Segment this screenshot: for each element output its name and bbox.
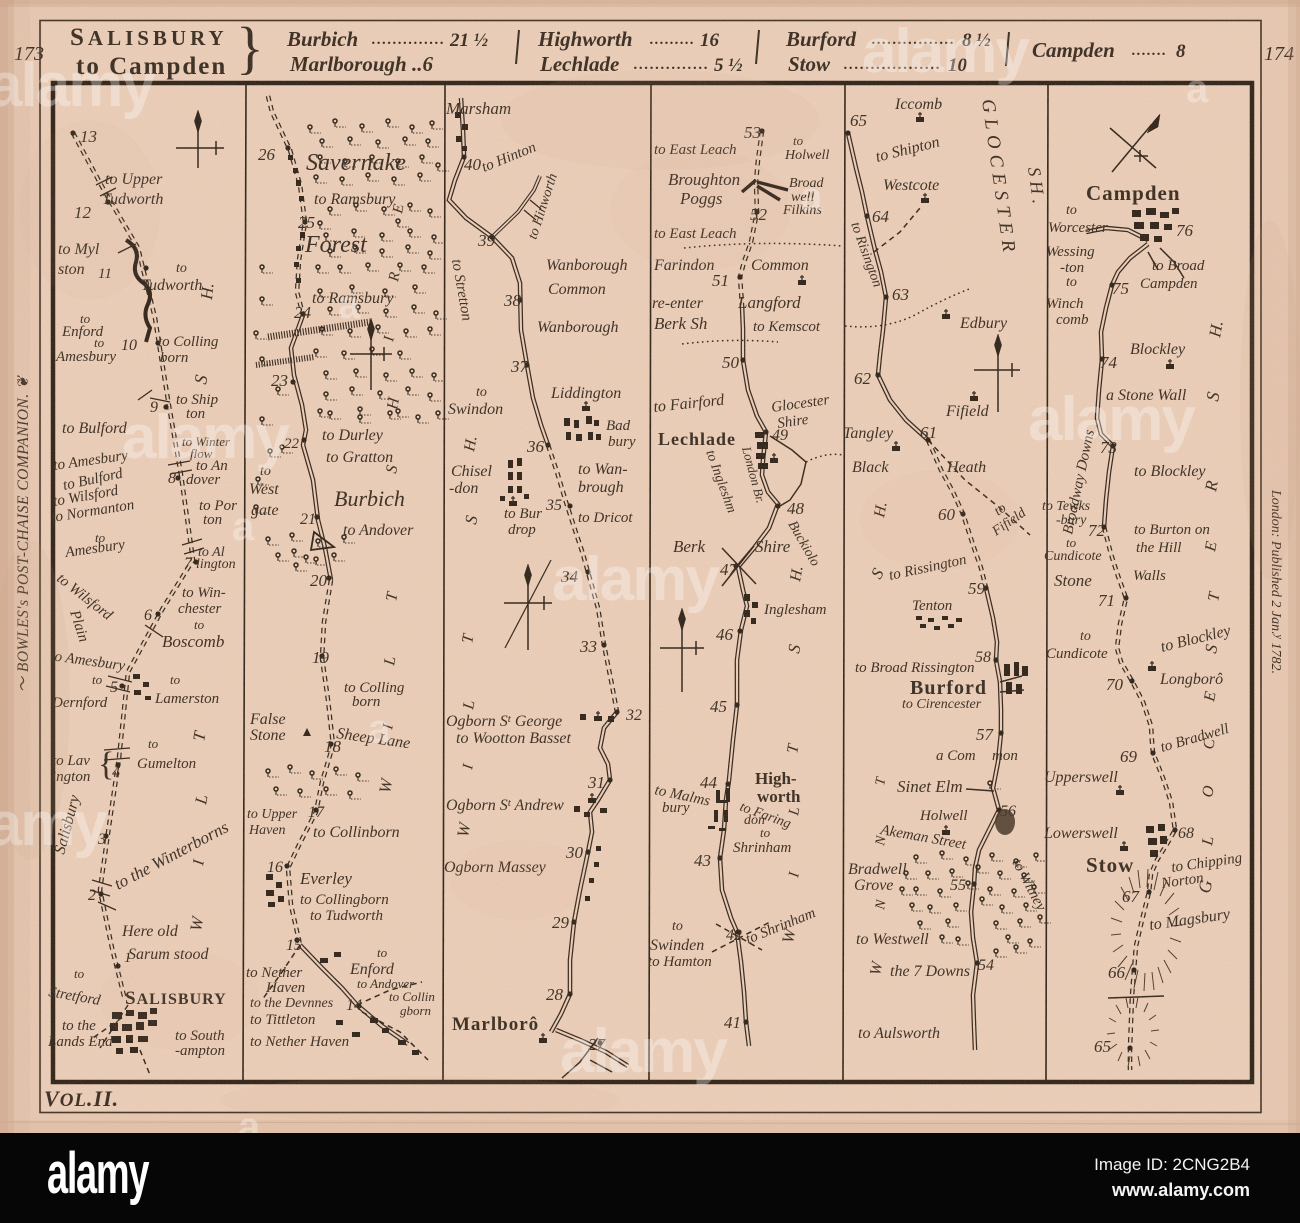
svg-text:Lamerston: Lamerston <box>154 691 219 707</box>
svg-text:comb: comb <box>1056 312 1089 328</box>
svg-text:Liddington: Liddington <box>550 385 621 402</box>
svg-text:to Collin: to Collin <box>389 989 435 1004</box>
svg-text:to: to <box>1066 275 1077 290</box>
svg-text:Dernford: Dernford <box>51 695 108 711</box>
svg-text:Burbich: Burbich <box>286 27 358 51</box>
svg-text:..............: .............. <box>372 32 444 48</box>
svg-text:12: 12 <box>74 203 92 222</box>
svg-text:to Nether: to Nether <box>246 965 302 981</box>
svg-text:Sarum stood: Sarum stood <box>128 946 209 963</box>
svg-text:13: 13 <box>80 127 97 146</box>
svg-text:to Tewks: to Tewks <box>1042 499 1091 514</box>
svg-text:Cundicote: Cundicote <box>1046 646 1108 662</box>
svg-text:to Cirencester: to Cirencester <box>902 697 982 712</box>
svg-text:VOL.II.: VOL.II. <box>44 1086 119 1111</box>
svg-text:to Collingborn: to Collingborn <box>300 892 389 908</box>
svg-text:24: 24 <box>294 303 312 322</box>
svg-text:Tudworth: Tudworth <box>141 277 202 294</box>
svg-text:bury: bury <box>662 800 690 816</box>
svg-text:to Upper: to Upper <box>105 171 163 188</box>
svg-text:Campden: Campden <box>1140 276 1198 292</box>
svg-text:Marlborô: Marlborô <box>452 1014 539 1035</box>
svg-text:Filkins: Filkins <box>782 203 822 218</box>
svg-text:Stone: Stone <box>1054 571 1092 590</box>
svg-text:8 ½: 8 ½ <box>962 30 991 51</box>
svg-text:{: { <box>98 746 114 783</box>
svg-text:SALISBURY: SALISBURY <box>125 988 227 1009</box>
svg-text:a Stone Wall: a Stone Wall <box>1106 387 1187 404</box>
svg-text:26: 26 <box>258 145 276 164</box>
svg-text:Edbury: Edbury <box>959 315 1008 332</box>
svg-text:to Campden: to Campden <box>76 53 227 80</box>
svg-text:to: to <box>94 335 105 350</box>
svg-text:to Blockley: to Blockley <box>1134 463 1206 480</box>
svg-text:Swindon: Swindon <box>448 401 503 418</box>
svg-text:Haven: Haven <box>265 980 305 996</box>
svg-text:28: 28 <box>546 985 564 1004</box>
svg-text:Tangley: Tangley <box>843 425 894 442</box>
svg-text:to: to <box>1066 203 1077 218</box>
svg-text:Berk Sh: Berk Sh <box>654 314 707 333</box>
svg-text:21 ½: 21 ½ <box>449 30 488 51</box>
svg-text:Ogborn St George: Ogborn St George <box>446 713 562 730</box>
svg-text:65: 65 <box>850 111 867 130</box>
svg-text:Burbich: Burbich <box>334 486 405 511</box>
svg-text:Common: Common <box>751 257 809 274</box>
svg-text:to Myl: to Myl <box>58 241 100 258</box>
svg-text:50: 50 <box>722 353 740 372</box>
svg-text:38: 38 <box>503 291 522 310</box>
svg-text:High-: High- <box>755 769 797 788</box>
svg-text:Fifield: Fifield <box>945 403 990 420</box>
svg-text:14: 14 <box>346 997 362 1014</box>
svg-text:2: 2 <box>88 887 96 904</box>
svg-text:Marsham: Marsham <box>445 99 511 118</box>
svg-text:20: 20 <box>310 571 328 590</box>
svg-text:52: 52 <box>750 205 768 224</box>
svg-text:46: 46 <box>716 625 734 644</box>
svg-text:75: 75 <box>1112 279 1129 298</box>
svg-text:Everley: Everley <box>299 869 352 888</box>
svg-text:to Burton on: to Burton on <box>1134 522 1210 538</box>
svg-text:H.: H. <box>871 500 891 519</box>
svg-text:a Com: a Com <box>936 748 976 764</box>
svg-text:Sinet Elm: Sinet Elm <box>897 777 963 796</box>
svg-text:60: 60 <box>938 505 956 524</box>
svg-text:21: 21 <box>300 511 316 528</box>
svg-text:Marlborough ..6: Marlborough ..6 <box>289 52 433 76</box>
svg-text:39: 39 <box>477 231 496 250</box>
svg-text:.......: ....... <box>1132 43 1166 59</box>
svg-text:Boscomb: Boscomb <box>162 632 224 651</box>
svg-text:45: 45 <box>710 697 727 716</box>
svg-text:to Tittleton: to Tittleton <box>250 1012 315 1028</box>
svg-text:68: 68 <box>1178 825 1194 842</box>
svg-text:Amesbury: Amesbury <box>55 349 116 365</box>
svg-text:Wanborough: Wanborough <box>546 257 628 274</box>
svg-text:69: 69 <box>1120 747 1138 766</box>
svg-text:17: 17 <box>308 804 325 821</box>
svg-text:West: West <box>249 481 279 498</box>
svg-text:to Aulsworth: to Aulsworth <box>858 1025 940 1042</box>
svg-text:64: 64 <box>872 207 890 226</box>
svg-text:-ampton: -ampton <box>175 1043 225 1059</box>
svg-text:16: 16 <box>700 30 720 51</box>
svg-text:Winch: Winch <box>1046 296 1084 312</box>
svg-text:32: 32 <box>625 707 642 724</box>
svg-text:Black: Black <box>852 459 889 476</box>
svg-text:to Tudworth: to Tudworth <box>310 908 383 924</box>
svg-text:to: to <box>194 617 205 632</box>
svg-text:66: 66 <box>1108 963 1126 982</box>
svg-text:dover: dover <box>186 472 220 488</box>
svg-text:to: to <box>176 261 187 276</box>
svg-text:mon: mon <box>992 748 1018 764</box>
svg-text:www.alamy.com: www.alamy.com <box>1111 1180 1250 1200</box>
svg-text:43: 43 <box>694 851 711 870</box>
svg-text:False: False <box>249 711 286 728</box>
svg-text:71: 71 <box>1098 591 1115 610</box>
svg-text:drop: drop <box>508 522 536 538</box>
svg-text:16: 16 <box>267 859 283 876</box>
svg-text:33: 33 <box>579 637 597 656</box>
svg-text:Stone: Stone <box>250 727 286 744</box>
svg-text:47: 47 <box>720 560 739 579</box>
svg-text:bury: bury <box>608 434 636 450</box>
svg-text:Grove: Grove <box>854 877 893 894</box>
svg-text:to Colling: to Colling <box>158 334 219 350</box>
svg-text:to Lav: to Lav <box>52 753 90 769</box>
svg-text:Lechlade: Lechlade <box>658 429 736 449</box>
svg-text:54: 54 <box>978 957 994 974</box>
svg-text:to: to <box>760 825 771 840</box>
svg-text:to Bulford: to Bulford <box>62 420 128 437</box>
svg-text:27: 27 <box>588 1035 607 1054</box>
svg-text:gborn: gborn <box>400 1003 431 1018</box>
svg-text:10: 10 <box>948 55 968 76</box>
svg-text:Blockley: Blockley <box>1130 341 1186 358</box>
svg-text:to Kemscot: to Kemscot <box>753 319 821 335</box>
svg-text:23: 23 <box>271 371 288 390</box>
svg-text:Heath: Heath <box>946 459 986 476</box>
svg-text:to Collinborn: to Collinborn <box>313 824 400 841</box>
svg-text:H.: H. <box>461 434 481 453</box>
svg-text:born: born <box>160 350 188 366</box>
svg-text:-bury: -bury <box>1056 513 1087 528</box>
svg-text:22: 22 <box>284 436 300 452</box>
svg-text:Chisel: Chisel <box>451 463 492 480</box>
svg-text:to Westwell: to Westwell <box>856 931 929 948</box>
svg-text:chester: chester <box>178 601 221 617</box>
svg-text:〜 BOWLES's POST-CHAISE COMPANI: 〜 BOWLES's POST-CHAISE COMPANION. ❦ <box>15 375 32 692</box>
svg-text:..................: .................. <box>844 57 940 73</box>
svg-text:Holwell: Holwell <box>919 808 968 824</box>
svg-text:15: 15 <box>286 937 302 954</box>
svg-text:Poggs: Poggs <box>679 189 723 208</box>
svg-text:to Ramsbury: to Ramsbury <box>312 290 394 307</box>
svg-text:}: } <box>236 15 264 80</box>
svg-text:to Win-: to Win- <box>182 585 226 601</box>
svg-text:alamy: alamy <box>47 1142 149 1206</box>
svg-text:to Nether Haven: to Nether Haven <box>250 1034 349 1050</box>
svg-text:65: 65 <box>1094 1037 1111 1056</box>
svg-text:to: to <box>148 736 159 751</box>
svg-text:76: 76 <box>1176 221 1194 240</box>
svg-text:to Broad Rissington: to Broad Rissington <box>855 660 974 676</box>
svg-text:Burford: Burford <box>785 27 857 51</box>
svg-text:34: 34 <box>560 567 579 586</box>
svg-text:to Broad: to Broad <box>1152 258 1205 274</box>
svg-text:Cundicote: Cundicote <box>1044 549 1102 564</box>
svg-text:to: to <box>1080 629 1091 644</box>
svg-text:ton: ton <box>203 512 222 528</box>
svg-text:Common: Common <box>548 281 606 298</box>
svg-text:to: to <box>92 672 103 687</box>
svg-text:to Bur: to Bur <box>504 506 542 522</box>
svg-text:Walls: Walls <box>1133 568 1166 584</box>
svg-text:10: 10 <box>121 337 137 354</box>
svg-text:72: 72 <box>1088 521 1106 540</box>
svg-text:Longborô: Longborô <box>1159 671 1223 688</box>
svg-text:to Andover: to Andover <box>343 522 414 539</box>
svg-text:to: to <box>793 133 804 148</box>
svg-text:19: 19 <box>312 648 330 667</box>
svg-text:41: 41 <box>724 1013 741 1032</box>
svg-text:8: 8 <box>168 470 176 487</box>
svg-text:to the Devnnes: to the Devnnes <box>250 996 334 1011</box>
svg-text:Bradwell: Bradwell <box>848 861 907 878</box>
svg-text:29: 29 <box>552 913 570 932</box>
svg-text:born: born <box>352 694 380 710</box>
svg-text:59: 59 <box>968 579 986 598</box>
svg-text:re-enter: re-enter <box>652 295 704 312</box>
svg-text:Westcote: Westcote <box>883 177 939 194</box>
svg-text:to Dricot: to Dricot <box>578 510 633 526</box>
svg-text:5: 5 <box>110 679 118 696</box>
svg-text:Iccomb: Iccomb <box>894 96 942 113</box>
svg-text:H.: H. <box>197 282 217 301</box>
svg-text:37: 37 <box>510 357 530 376</box>
svg-text:ston: ston <box>58 261 85 278</box>
svg-text:Lands End: Lands End <box>47 1034 113 1050</box>
svg-text:6: 6 <box>144 607 152 624</box>
svg-text:Broughton: Broughton <box>668 170 740 189</box>
svg-text:SALISBURY: SALISBURY <box>70 24 228 51</box>
svg-text:25: 25 <box>298 213 315 232</box>
svg-text:to Durley: to Durley <box>322 427 384 444</box>
svg-text:to Gratton: to Gratton <box>326 449 393 466</box>
svg-text:-don: -don <box>449 480 478 497</box>
svg-text:Campden: Campden <box>1086 181 1181 205</box>
svg-text:55: 55 <box>950 877 966 894</box>
svg-text:49: 49 <box>772 427 788 444</box>
svg-text:brough: brough <box>578 479 624 496</box>
svg-text:7: 7 <box>184 555 193 572</box>
svg-text:31: 31 <box>587 773 605 792</box>
svg-text:Lowerswell: Lowerswell <box>1043 825 1118 842</box>
svg-text:ton: ton <box>186 406 205 422</box>
svg-text:9: 9 <box>150 399 158 416</box>
svg-text:H.: H. <box>787 564 807 583</box>
svg-text:London: Published 2 Jan.y 1782: London: Published 2 Jan.y 1782. <box>1268 489 1284 674</box>
svg-text:48: 48 <box>787 499 805 518</box>
svg-text:Haven: Haven <box>248 823 286 838</box>
svg-text:to Upper: to Upper <box>247 807 298 822</box>
svg-text:Stow: Stow <box>1086 853 1134 877</box>
svg-text:35: 35 <box>545 497 562 514</box>
svg-text:30: 30 <box>565 843 584 862</box>
svg-text:Wessing: Wessing <box>1046 244 1095 260</box>
svg-text:70: 70 <box>1106 675 1124 694</box>
svg-text:8: 8 <box>1176 41 1186 62</box>
svg-text:Burford: Burford <box>910 677 987 699</box>
svg-text:-ton: -ton <box>1060 260 1084 276</box>
svg-text:3: 3 <box>97 831 106 848</box>
svg-text:Worcester: Worcester <box>1048 220 1108 236</box>
svg-text:to South: to South <box>175 1028 225 1044</box>
svg-text:to: to <box>260 464 271 479</box>
svg-text:44: 44 <box>700 773 718 792</box>
svg-text:to: to <box>377 945 388 960</box>
svg-text:42: 42 <box>726 927 742 944</box>
svg-text:to: to <box>476 385 487 400</box>
svg-text:lington: lington <box>196 557 236 572</box>
svg-text:61: 61 <box>920 423 937 442</box>
svg-text:Highworth: Highworth <box>537 27 633 51</box>
svg-text:gate: gate <box>251 502 279 519</box>
svg-text:Bad: Bad <box>606 418 631 434</box>
svg-text:62: 62 <box>854 369 872 388</box>
svg-text:................: ................ <box>872 32 954 48</box>
svg-text:Savernake: Savernake <box>306 150 406 176</box>
svg-text:57: 57 <box>976 725 995 744</box>
svg-text:Shrinham: Shrinham <box>733 840 792 856</box>
svg-text:H.: H. <box>1205 319 1227 340</box>
svg-text:74: 74 <box>1100 353 1118 372</box>
svg-text:Swinden: Swinden <box>650 937 704 954</box>
svg-text:to Ramsbury: to Ramsbury <box>314 191 396 208</box>
svg-text:Farindon: Farindon <box>653 257 714 274</box>
svg-text:Tudworth: Tudworth <box>102 191 163 208</box>
svg-text:to East Leach: to East Leach <box>654 142 737 158</box>
svg-text:to Hamton: to Hamton <box>648 954 712 970</box>
svg-text:..............: .............. <box>634 57 708 73</box>
svg-text:Image ID: 2CNG2B4: Image ID: 2CNG2B4 <box>1094 1155 1250 1174</box>
svg-text:53: 53 <box>744 123 761 142</box>
svg-text:Upperswell: Upperswell <box>1044 769 1118 786</box>
svg-text:Campden: Campden <box>1032 38 1115 62</box>
svg-text:Inglesham: Inglesham <box>763 602 827 618</box>
svg-text:to East Leach: to East Leach <box>654 226 737 242</box>
svg-text:Holwell: Holwell <box>784 148 829 163</box>
svg-text:11: 11 <box>98 266 112 282</box>
svg-text:40: 40 <box>464 155 482 174</box>
svg-text:36: 36 <box>526 437 545 456</box>
svg-text:Gumelton: Gumelton <box>137 756 196 772</box>
svg-text:174: 174 <box>1264 43 1294 65</box>
svg-text:Berk: Berk <box>673 537 706 556</box>
svg-text:1: 1 <box>124 950 132 966</box>
svg-text:to: to <box>74 966 85 981</box>
svg-text:Tenton: Tenton <box>912 598 952 614</box>
svg-text:5 ½: 5 ½ <box>714 55 743 76</box>
svg-text:to the: to the <box>62 1018 96 1034</box>
svg-text:Ogborn St Andrew: Ogborn St Andrew <box>446 797 564 814</box>
svg-text:67: 67 <box>1122 887 1141 906</box>
svg-text:to: to <box>170 672 181 687</box>
svg-text:Broad: Broad <box>789 176 824 191</box>
svg-text:Stow: Stow <box>788 52 831 76</box>
svg-text:Shire: Shire <box>755 537 791 556</box>
svg-text:Forest: Forest <box>304 232 368 258</box>
svg-text:Wanborough: Wanborough <box>537 319 619 336</box>
svg-text:to: to <box>1066 535 1077 550</box>
svg-text:Here old: Here old <box>121 923 179 940</box>
svg-text:Ogborn Massey: Ogborn Massey <box>444 859 547 876</box>
svg-text:173: 173 <box>14 43 44 65</box>
svg-text:worth: worth <box>757 787 801 806</box>
svg-text:to: to <box>672 919 683 934</box>
svg-text:Langford: Langford <box>737 293 801 312</box>
svg-text:63: 63 <box>892 285 909 304</box>
svg-text:the Hill: the Hill <box>1136 540 1181 556</box>
svg-text:ington: ington <box>52 769 90 785</box>
svg-text:51: 51 <box>712 271 729 290</box>
svg-text:to Wootton Basset: to Wootton Basset <box>456 730 572 747</box>
svg-text:the 7 Downs: the 7 Downs <box>890 963 970 980</box>
svg-text:58: 58 <box>975 649 991 666</box>
svg-text:.........: ......... <box>650 32 694 48</box>
svg-text:to Wan-: to Wan- <box>578 461 628 478</box>
svg-text:Lechlade: Lechlade <box>539 52 619 76</box>
